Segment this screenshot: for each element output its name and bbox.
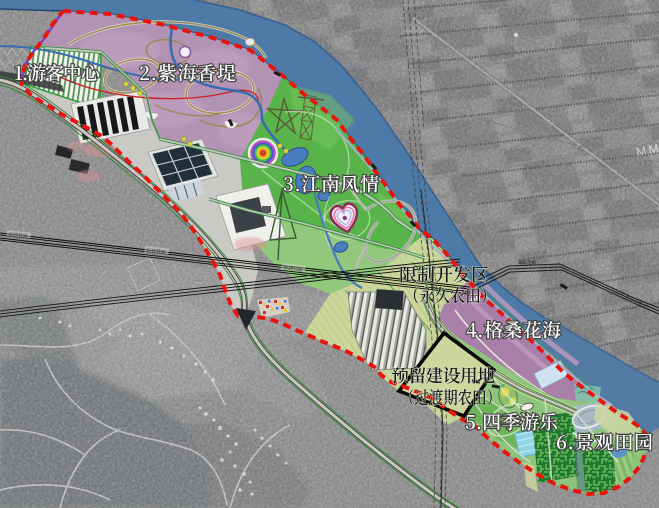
svg-text:4.格桑花海: 4.格桑花海	[466, 316, 562, 343]
svg-text:1.游客中心: 1.游客中心	[14, 59, 100, 86]
svg-text:2.紫海香堤: 2.紫海香堤	[139, 59, 236, 86]
svg-text:高压走廊: 高压走廊	[517, 259, 536, 266]
svg-text:6.景观田园: 6.景观田园	[556, 428, 653, 455]
svg-text:3.江南风情: 3.江南风情	[283, 170, 379, 197]
svg-text:（永久农田）: （永久农田）	[404, 282, 496, 308]
svg-text:5.四季游乐: 5.四季游乐	[465, 408, 558, 435]
svg-text:（过渡期农田）: （过渡期农田）	[400, 384, 501, 410]
